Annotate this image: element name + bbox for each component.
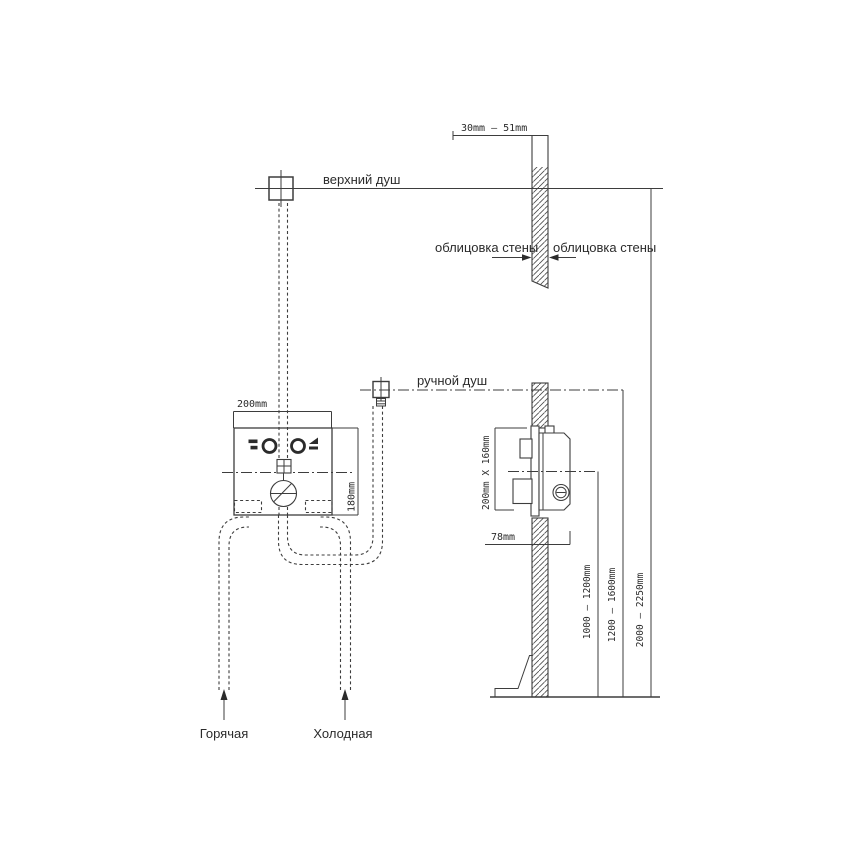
hot-valve-icon	[263, 440, 276, 453]
cold-pipe-outer	[320, 517, 351, 690]
mixer-box-front: 200mm	[222, 399, 358, 515]
valve-body-upper	[520, 439, 532, 458]
wall-thickness-dimension: 30mm – 51mm	[453, 123, 548, 140]
cold-supply-indicator: Холодная	[313, 689, 372, 741]
hot-pipe-outer	[219, 517, 249, 690]
hot-connection-zone	[235, 501, 262, 513]
height-dimensions: 1000 – 1200mm 1200 – 1600mm 2000 – 2250m…	[582, 189, 651, 698]
cold-connection-zone	[306, 501, 333, 513]
cold-pipe-inner	[320, 527, 341, 690]
hot-pipe-inner	[229, 527, 249, 690]
cold-arrow-icon	[342, 689, 349, 700]
box-height-value: 180mm	[347, 482, 358, 512]
box-height-dimension: 180mm	[332, 428, 358, 515]
cold-valve-symbol-icon	[309, 438, 318, 450]
wall-section	[532, 136, 548, 698]
cold-supply-label: Холодная	[313, 726, 372, 741]
hand-shower-label: ручной душ	[417, 373, 487, 388]
hot-valve-symbol-icon	[249, 440, 258, 450]
wall-cladding-right-label: облицовка стены	[553, 240, 656, 255]
depth-dimension: 78mm	[485, 531, 570, 545]
hot-supply-indicator: Горячая	[200, 689, 249, 741]
installation-diagram: 30mm – 51mm облицовка стены облицовка ст…	[0, 0, 866, 866]
bathtub-profile	[495, 656, 532, 698]
mixer-height-value: 1000 – 1200mm	[582, 565, 593, 640]
hand-shower-height-value: 1200 – 1600mm	[607, 568, 618, 643]
depth-value: 78mm	[491, 532, 515, 543]
wall-cladding-left-label: облицовка стены	[435, 240, 538, 255]
box-width-dimension: 200mm	[234, 399, 332, 428]
cladding-arrow-left-icon	[522, 254, 532, 260]
valve-body-lower	[513, 479, 532, 504]
hot-supply-label: Горячая	[200, 726, 249, 741]
top-shower-height-value: 2000 – 2250mm	[635, 573, 646, 648]
cold-valve-icon	[292, 440, 305, 453]
wall-thickness-value: 30mm – 51mm	[461, 123, 527, 134]
hand-shower-icon	[373, 377, 389, 406]
box-width-value: 200mm	[237, 399, 267, 410]
cladding-arrow-right-icon	[549, 254, 559, 260]
diverter-valve-icon	[271, 473, 297, 507]
wall-upper-hatch	[532, 167, 548, 288]
top-shower-label: верхний душ	[323, 172, 400, 187]
outlet-connection-icon	[277, 460, 291, 474]
hot-arrow-icon	[221, 689, 228, 700]
rough-in-value: 200mm X 160mm	[481, 435, 492, 510]
